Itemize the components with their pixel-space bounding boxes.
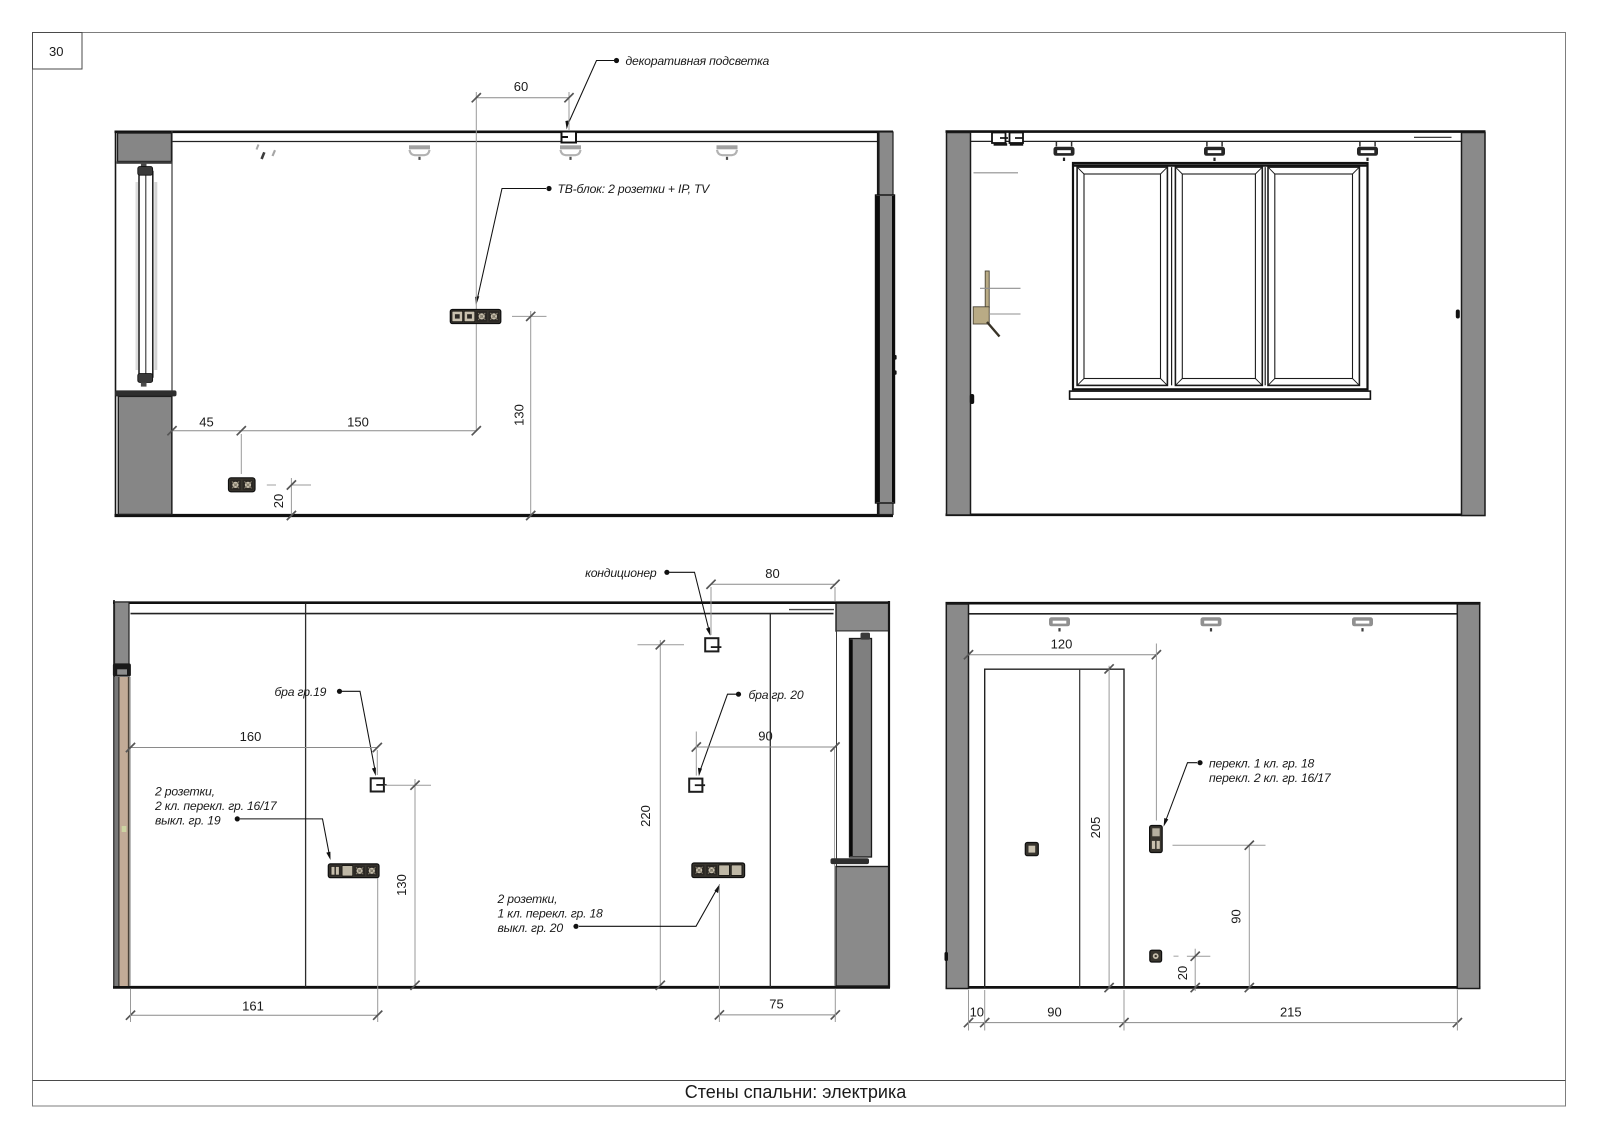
svg-text:130: 130 [512,404,527,426]
svg-text:20: 20 [1175,966,1190,980]
svg-text:1 кл. перекл. гр. 18: 1 кл. перекл. гр. 18 [498,907,604,921]
svg-text:90: 90 [1229,909,1244,923]
svg-text:120: 120 [1051,637,1073,652]
svg-text:бра гр. 20: бра гр. 20 [749,688,804,702]
svg-text:80: 80 [765,566,779,581]
svg-text:ТВ-блок: 2 розетки + IP, TV: ТВ-блок: 2 розетки + IP, TV [558,182,712,196]
svg-text:30: 30 [49,44,63,59]
svg-text:45: 45 [199,415,213,430]
svg-text:161: 161 [242,999,264,1014]
svg-text:2 кл. перекл. гр. 16/17: 2 кл. перекл. гр. 16/17 [154,799,278,813]
svg-text:выкл. гр. 19: выкл. гр. 19 [155,814,221,828]
svg-text:2 розетки,: 2 розетки, [497,892,558,906]
svg-text:перекл. 2 кл. гр. 16/17: перекл. 2 кл. гр. 16/17 [1209,771,1332,785]
svg-text:20: 20 [271,494,286,508]
svg-text:бра гр.19: бра гр.19 [275,685,327,699]
svg-text:215: 215 [1280,1005,1302,1020]
svg-text:перекл. 1 кл. гр. 18: перекл. 1 кл. гр. 18 [1209,756,1315,770]
svg-text:10: 10 [970,1005,984,1020]
svg-text:выкл. гр. 20: выкл. гр. 20 [498,921,564,935]
svg-text:60: 60 [514,79,528,94]
svg-text:205: 205 [1088,817,1103,839]
svg-text:130: 130 [394,874,409,896]
svg-text:90: 90 [758,729,772,744]
svg-text:кондиционер: кондиционер [585,566,657,580]
svg-text:75: 75 [769,997,783,1012]
svg-text:90: 90 [1047,1005,1061,1020]
svg-text:160: 160 [240,729,262,744]
svg-text:150: 150 [347,415,369,430]
svg-text:Стены спальни: электрика: Стены спальни: электрика [685,1082,908,1102]
svg-text:2 розетки,: 2 розетки, [154,785,215,799]
svg-text:220: 220 [638,805,653,827]
svg-text:декоративная подсветка: декоративная подсветка [626,54,770,68]
